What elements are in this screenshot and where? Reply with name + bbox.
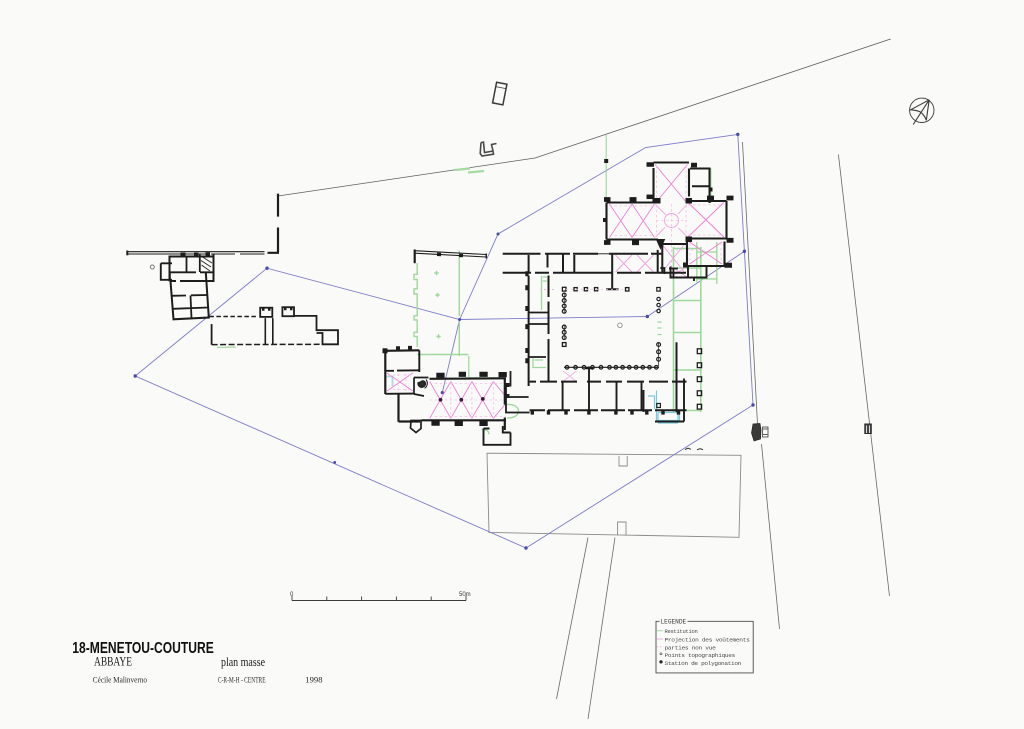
- svg-text:parties non vue: parties non vue: [665, 645, 717, 652]
- svg-text:ABBAYE: ABBAYE: [94, 654, 132, 669]
- svg-text:Points topographiques: Points topographiques: [665, 652, 736, 659]
- svg-text:Station de polygonation: Station de polygonation: [665, 660, 742, 667]
- svg-text:plan masse: plan masse: [221, 654, 265, 669]
- svg-text:Cécile Malinverno: Cécile Malinverno: [93, 675, 147, 685]
- svg-text:LEGENDE: LEGENDE: [661, 619, 687, 626]
- svg-text:1998: 1998: [305, 675, 322, 685]
- svg-text:C-R-M-H - CENTRE: C-R-M-H - CENTRE: [218, 675, 266, 685]
- svg-text:50m: 50m: [459, 592, 471, 598]
- svg-text:Restitution: Restitution: [665, 628, 699, 635]
- svg-text:Projection des voûtements: Projection des voûtements: [665, 636, 751, 643]
